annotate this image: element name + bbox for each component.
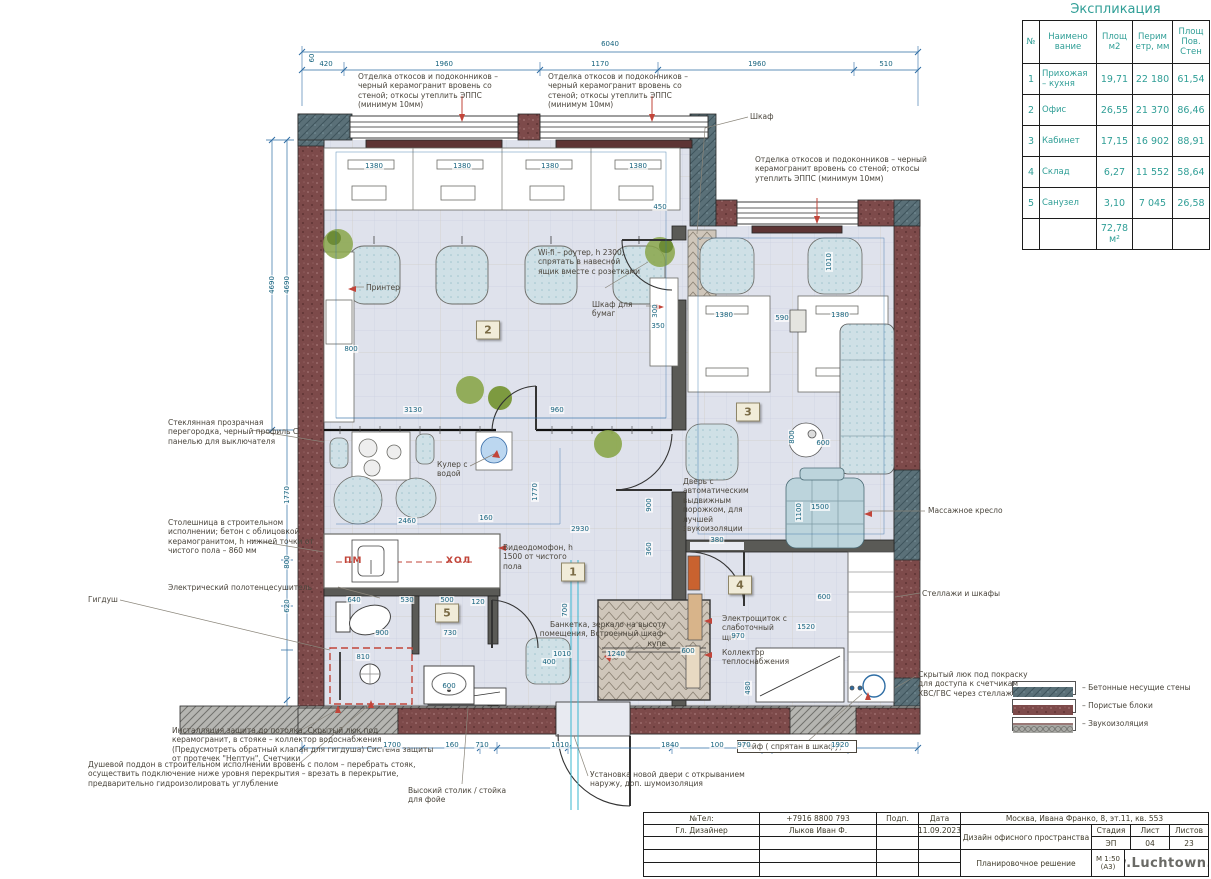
dimension-label: 530 <box>399 596 414 604</box>
annotation-wardrobe-note: Шкаф <box>750 112 790 121</box>
dimension-label: 3130 <box>403 406 423 414</box>
col-name: Наимено вание <box>1040 21 1097 64</box>
dimension-label: 1500 <box>810 503 830 511</box>
legend-label: – Звукоизоляция <box>1082 719 1148 728</box>
dimension-label: 4690 <box>283 275 291 295</box>
cell: 58,64 <box>1173 157 1210 188</box>
total-area: 72,78 м² <box>1097 219 1133 250</box>
dimension-label: 900 <box>645 497 653 512</box>
dimension-label: 1380 <box>714 311 734 319</box>
annotation-fridge-label: ХОЛ <box>446 556 486 567</box>
dimension-label: 1380 <box>830 311 850 319</box>
legend-label: – Пористые блоки <box>1082 701 1153 710</box>
dimension-label: 380 <box>709 536 724 544</box>
dimension-label: 360 <box>645 541 653 556</box>
total-empty-2 <box>1040 219 1097 250</box>
dimension-label: 590 <box>774 314 789 322</box>
annotation-collector-note: Коллектор теплоснабжения <box>722 648 802 667</box>
cell: 3 <box>1023 126 1040 157</box>
total-empty-4 <box>1173 219 1210 250</box>
cell: 26,58 <box>1173 188 1210 219</box>
dimension-label: 2460 <box>397 517 417 525</box>
cell: 5 <box>1023 188 1040 219</box>
sheets-value: 23 <box>1169 836 1209 850</box>
empty-cell-1 <box>643 836 760 850</box>
dimension-label: 600 <box>441 682 456 690</box>
cell: 1 <box>1023 64 1040 95</box>
cell: 11 552 <box>1133 157 1173 188</box>
dimension-label: 800 <box>788 429 796 444</box>
dimension-label: 4690 <box>268 275 276 295</box>
dimension-label: 640 <box>346 596 361 604</box>
empty-cell-7 <box>876 849 919 863</box>
dimension-label: 1960 <box>747 60 767 68</box>
explication-row-2: 2Офис26,5521 37086,46 <box>1023 95 1210 126</box>
dimension-label: 600 <box>816 593 831 601</box>
cell: Прихожая – кухня <box>1040 64 1097 95</box>
cell: Склад <box>1040 157 1097 188</box>
cell: 17,15 <box>1097 126 1133 157</box>
cell: 4 <box>1023 157 1040 188</box>
annotation-printer-note: Принтер <box>366 283 411 292</box>
dimension-label: 970 <box>730 632 745 640</box>
annotation-bench-note: Банкетка, зеркало на высоту помещения, В… <box>536 620 666 648</box>
sound-swatch-icon <box>1012 717 1076 731</box>
dimension-label: 800 <box>283 554 291 569</box>
empty-cell-5 <box>643 849 760 863</box>
annotation-new-door-note: Установка новой двери с открыванием нару… <box>590 770 765 789</box>
annotation-finish-note-left: Отделка откосов и подоконников – черный … <box>358 72 510 110</box>
dimension-label: 1170 <box>590 60 610 68</box>
dimension-label: 710 <box>474 741 489 749</box>
cell: 7 045 <box>1133 188 1173 219</box>
floor-plan-page: Отделка откосов и подоконников – черный … <box>0 0 1211 879</box>
dimension-label: 1770 <box>283 485 291 505</box>
dimension-label: 450 <box>652 203 667 211</box>
total-empty-3 <box>1133 219 1173 250</box>
dimension-label: 480 <box>744 680 752 695</box>
dimension-label: 1380 <box>364 162 384 170</box>
annotation-massage-chair-note: Массажное кресло <box>928 506 1023 515</box>
dimension-label: 1380 <box>540 162 560 170</box>
room-label-4: 4 <box>728 576 752 595</box>
room-label-5: 5 <box>435 604 459 623</box>
total-empty-1 <box>1023 219 1040 250</box>
cell: 88,91 <box>1173 126 1210 157</box>
annotation-paper-cabinet-note: Шкаф для бумаг <box>592 300 647 319</box>
col-area: Площ м2 <box>1097 21 1133 64</box>
dimension-label: 1380 <box>628 162 648 170</box>
cell: 2 <box>1023 95 1040 126</box>
annotation-auto-door-note: Дверь с автоматическим выдвижным порожко… <box>683 477 765 533</box>
dimension-label: 1240 <box>606 650 626 658</box>
annotation-shower-tray-note: Душевой поддон в строительном исполнении… <box>88 760 428 788</box>
explication-row-1: 1Прихожая – кухня19,7122 18061,54 <box>1023 64 1210 95</box>
dimension-label: 160 <box>444 741 459 749</box>
dimension-label: 510 <box>878 60 893 68</box>
legend-item-sound: – Звукоизоляция <box>1012 717 1191 730</box>
dimension-label: 810 <box>355 653 370 661</box>
cell: 16 902 <box>1133 126 1173 157</box>
sheet-value: 04 <box>1130 836 1170 850</box>
scale-value: М 1:50 (А3) <box>1091 849 1125 877</box>
dimension-label: 800 <box>343 345 358 353</box>
explication-table: Экспликация № Наимено вание Площ м2 Пери… <box>1022 2 1209 250</box>
dimension-label: 60 <box>308 53 316 64</box>
dimension-label: 700 <box>561 602 569 617</box>
empty-cell-2 <box>759 836 877 850</box>
cell: 26,55 <box>1097 95 1133 126</box>
dimension-label: 960 <box>549 406 564 414</box>
dimension-label: 730 <box>442 629 457 637</box>
dimension-label: 120 <box>470 598 485 606</box>
dimension-label: 1920 <box>830 741 850 749</box>
project-name: Дизайн офисного пространства <box>960 824 1092 850</box>
dimension-label: 6040 <box>600 40 620 48</box>
dimension-label: 350 <box>650 322 665 330</box>
empty-cell-10 <box>759 862 877 877</box>
annotation-countertop-note: Столешница в строительном исполнении; бе… <box>168 518 333 556</box>
dimension-label: 1010 <box>552 650 572 658</box>
dimension-label: 1380 <box>452 162 472 170</box>
dimension-label: 900 <box>374 629 389 637</box>
cell: Кабинет <box>1040 126 1097 157</box>
room-label-3: 3 <box>736 403 760 422</box>
cell: 6,27 <box>1097 157 1133 188</box>
legend-label: – Бетонные несущие стены <box>1082 683 1191 692</box>
dimension-label: 600 <box>680 647 695 655</box>
dimension-label: 300 <box>651 303 659 318</box>
dimension-label: 1960 <box>434 60 454 68</box>
dimension-label: 1520 <box>796 623 816 631</box>
col-perimeter: Перим етр, мм <box>1133 21 1173 64</box>
empty-cell-8 <box>918 849 961 863</box>
dimension-label: 620 <box>283 598 291 613</box>
dimension-label: 1770 <box>531 482 539 502</box>
cell: 86,46 <box>1173 95 1210 126</box>
empty-cell-12 <box>918 862 961 877</box>
dimension-label: 2930 <box>570 525 590 533</box>
annotation-wifi-note: Wi-fi – роутер, h 2300, спрятать в навес… <box>538 248 643 276</box>
dimension-label: 160 <box>478 514 493 522</box>
dimension-label: 400 <box>541 658 556 666</box>
explication-row-3: 3Кабинет17,1516 90288,91 <box>1023 126 1210 157</box>
concrete-swatch-icon <box>1012 681 1076 695</box>
title-block: №Тел: +7916 8800 793 Подп. Дата Гл. Диза… <box>643 812 1209 877</box>
dimension-label: 1700 <box>382 741 402 749</box>
empty-cell-3 <box>876 836 919 850</box>
dimension-label: 1840 <box>660 741 680 749</box>
explication-row-5: 5Санузел3,107 04526,58 <box>1023 188 1210 219</box>
cell: 3,10 <box>1097 188 1133 219</box>
room-label-1: 1 <box>561 563 585 582</box>
annotation-cooler-note: Кулер с водой <box>437 460 485 479</box>
office-desks <box>324 148 680 210</box>
annotation-towel-rail-note: Электрический полотенцесушитель <box>168 583 343 592</box>
dimension-label: 420 <box>318 60 333 68</box>
dimension-label: 970 <box>736 741 751 749</box>
dimension-label: 1010 <box>550 741 570 749</box>
empty-cell-9 <box>643 862 760 877</box>
wall-legend: – Бетонные несущие стены– Пористые блоки… <box>1012 681 1191 735</box>
annotation-hygiene-shower-note: Гигдуш <box>88 595 148 604</box>
cell: 22 180 <box>1133 64 1173 95</box>
col-wall-area: Площ Пов. Стен <box>1173 21 1210 64</box>
col-number: № <box>1023 21 1040 64</box>
annotation-glass-partition-note: Стеклянная прозрачная перегородка, черны… <box>168 418 318 446</box>
room-label-2: 2 <box>476 321 500 340</box>
porous-swatch-icon <box>1012 699 1076 713</box>
annotation-shelving-note: Стеллажи и шкафы <box>922 589 1017 598</box>
dimension-label: 600 <box>815 439 830 447</box>
website-link[interactable]: www.Luchtown.com <box>1124 849 1209 877</box>
legend-item-porous: – Пористые блоки <box>1012 699 1191 712</box>
cell: Офис <box>1040 95 1097 126</box>
dimension-label: 1100 <box>795 502 803 522</box>
cell: 19,71 <box>1097 64 1133 95</box>
dimension-label: 100 <box>709 741 724 749</box>
legend-item-concrete: – Бетонные несущие стены <box>1012 681 1191 694</box>
annotation-finish-note-right: Отделка откосов и подоконников – черный … <box>755 155 927 183</box>
empty-cell-4 <box>918 836 961 850</box>
stage-value: ЭП <box>1091 836 1131 850</box>
dimension-label: 1010 <box>825 252 833 272</box>
cell: 21 370 <box>1133 95 1173 126</box>
empty-cell-11 <box>876 862 919 877</box>
annotation-dishwasher-label: ПМ <box>344 556 374 567</box>
cell: Санузел <box>1040 188 1097 219</box>
cell: 61,54 <box>1173 64 1210 95</box>
empty-cell-6 <box>759 849 877 863</box>
annotation-high-table-note: Высокий столик / стойка для фойе <box>408 786 520 805</box>
annotation-finish-note-mid: Отделка откосов и подоконников – черный … <box>548 72 700 110</box>
drawing-name: Планировочное решение <box>960 849 1092 877</box>
explication-title: Экспликация <box>1022 2 1209 17</box>
explication-row-4: 4Склад6,2711 55258,64 <box>1023 157 1210 188</box>
